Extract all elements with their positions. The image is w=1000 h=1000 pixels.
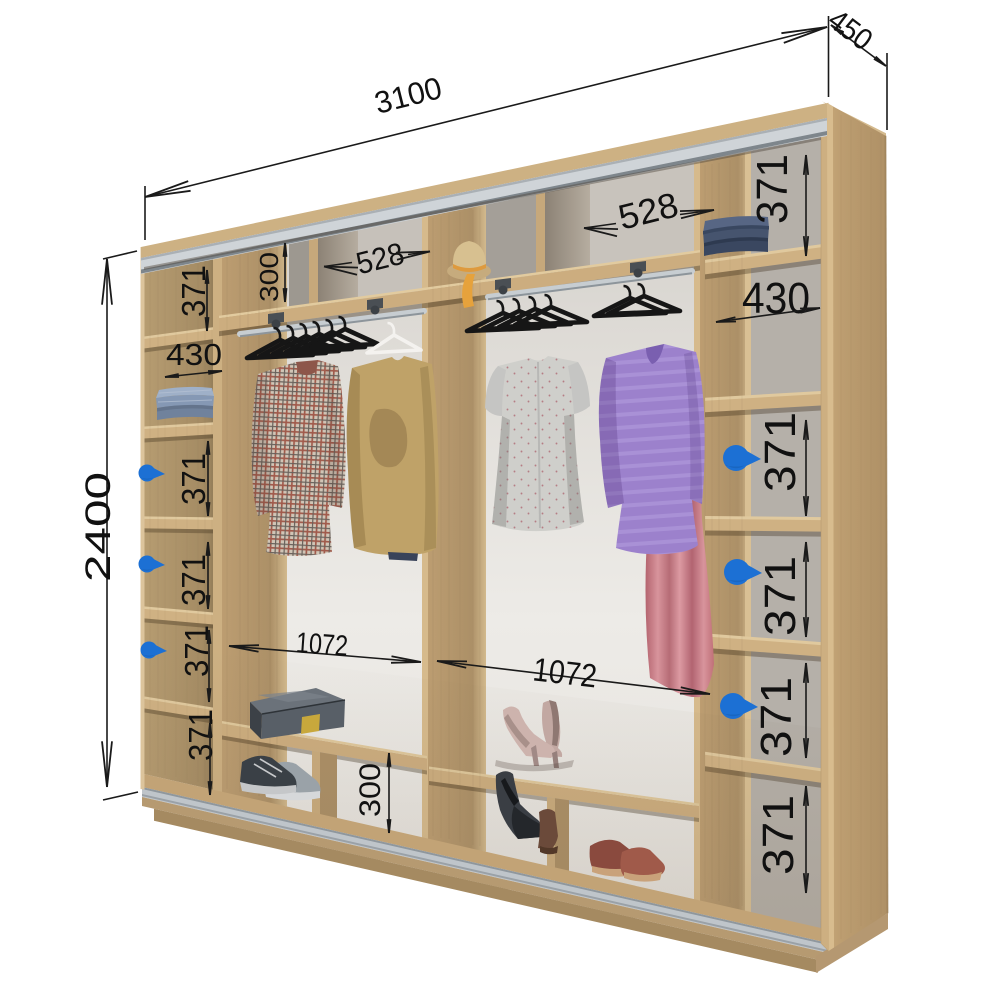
svg-text:1072: 1072 xyxy=(531,650,599,694)
svg-text:371: 371 xyxy=(756,556,805,636)
svg-text:371: 371 xyxy=(175,453,212,505)
svg-text:371: 371 xyxy=(182,709,219,761)
svg-text:300: 300 xyxy=(254,252,284,302)
svg-text:430: 430 xyxy=(166,337,222,372)
svg-text:1072: 1072 xyxy=(295,627,349,663)
svg-text:300: 300 xyxy=(354,763,387,817)
svg-text:371: 371 xyxy=(756,412,805,492)
svg-text:371: 371 xyxy=(748,154,797,224)
svg-text:371: 371 xyxy=(754,795,803,875)
svg-text:2400: 2400 xyxy=(79,472,118,582)
svg-text:430: 430 xyxy=(742,274,810,323)
svg-text:371: 371 xyxy=(752,677,801,757)
